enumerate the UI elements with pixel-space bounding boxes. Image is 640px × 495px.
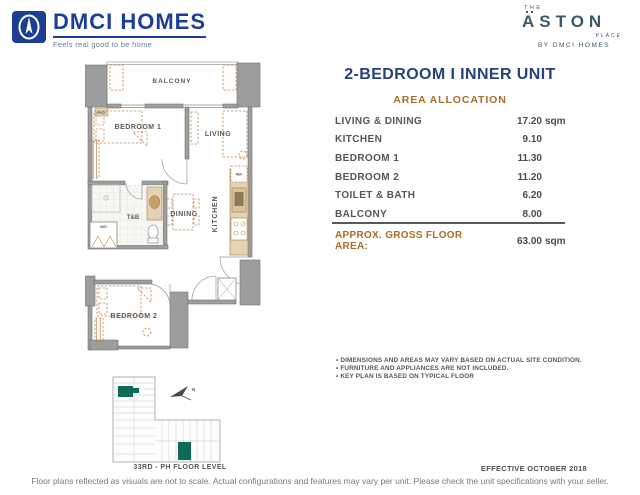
row-label: TOILET & BATH bbox=[335, 190, 415, 201]
tb-label: T&B bbox=[127, 215, 140, 221]
aston-by-line: BY DMCI HOMES bbox=[522, 42, 626, 49]
gross-floor-area-row: APPROX. GROSS FLOOR AREA: 63.00sqm bbox=[335, 233, 567, 249]
gross-floor-area-value: 63.00 bbox=[498, 236, 542, 247]
unit-floor-plan: BALCONY BEDROOM 1 LIVING T&B DINING KITC… bbox=[85, 52, 315, 364]
row-label: KITCHEN bbox=[335, 134, 382, 145]
highlighted-unit-balcony bbox=[133, 388, 139, 393]
aston-umlaut-decoration bbox=[526, 11, 528, 13]
area-allocation-heading: AREA ALLOCATION bbox=[325, 94, 575, 106]
row-unit bbox=[545, 134, 567, 145]
area-allocation-table: LIVING & DINING 17.20sqm KITCHEN 9.10 BE… bbox=[335, 112, 567, 224]
gross-floor-area-unit: sqm bbox=[545, 236, 567, 247]
table-row: TOILET & BATH 6.20 bbox=[335, 186, 567, 205]
row-label: BEDROOM 2 bbox=[335, 172, 399, 183]
table-divider bbox=[332, 222, 565, 224]
unit-title: 2-BEDROOM I INNER UNIT bbox=[325, 66, 575, 84]
bedroom2-label: BEDROOM 2 bbox=[111, 313, 158, 320]
row-value: 11.20 bbox=[498, 172, 542, 183]
dmci-name: DMCI HOMES bbox=[53, 11, 206, 38]
effective-date: EFFECTIVE OCTOBER 2018 bbox=[481, 464, 587, 473]
ref-label: REF bbox=[236, 173, 243, 177]
wacu-label: WACU bbox=[97, 111, 106, 115]
wd-label: W/D bbox=[100, 225, 107, 229]
brochure-page: DMCI HOMES Feels real good to be home TH… bbox=[0, 0, 640, 495]
table-row: BALCONY 8.00 bbox=[335, 205, 567, 224]
bedroom1-label: BEDROOM 1 bbox=[115, 124, 162, 131]
kitchen-counter bbox=[230, 166, 248, 255]
dmci-logo-text: DMCI HOMES Feels real good to be home bbox=[53, 11, 206, 49]
note-item: KEY PLAN IS BASED ON TYPICAL FLOOR bbox=[336, 373, 596, 381]
row-label: BEDROOM 1 bbox=[335, 153, 399, 164]
row-value: 6.20 bbox=[498, 190, 542, 201]
table-row: BEDROOM 2 11.20 bbox=[335, 168, 567, 187]
row-value: 9.10 bbox=[498, 134, 542, 145]
aston-name-text: ASTON bbox=[522, 12, 606, 31]
living-label: LIVING bbox=[205, 131, 231, 138]
highlighted-unit bbox=[118, 386, 133, 397]
north-arrow-icon: N bbox=[170, 386, 195, 400]
notes-list: DIMENSIONS AND AREAS MAY VARY BASED ON A… bbox=[336, 357, 596, 382]
row-unit bbox=[545, 190, 567, 201]
table-row: KITCHEN 9.10 bbox=[335, 131, 567, 150]
dmci-emblem-icon bbox=[12, 11, 46, 43]
row-value: 8.00 bbox=[498, 209, 542, 220]
note-item: FURNITURE AND APPLIANCES ARE NOT INCLUDE… bbox=[336, 365, 596, 373]
balcony-label: BALCONY bbox=[152, 78, 191, 85]
aston-the: THE bbox=[524, 5, 626, 11]
kitchen-label: KITCHEN bbox=[212, 196, 219, 233]
row-label: LIVING & DINING bbox=[335, 116, 422, 127]
key-plan: N bbox=[98, 376, 248, 464]
disclaimer-text: Floor plans reflected as visuals are not… bbox=[0, 476, 640, 486]
aston-name: ASTON bbox=[522, 12, 626, 32]
dining-label: DINING bbox=[170, 211, 198, 218]
row-value: 11.30 bbox=[498, 153, 542, 164]
row-unit bbox=[545, 172, 567, 183]
row-unit bbox=[545, 209, 567, 220]
table-row: BEDROOM 1 11.30 bbox=[335, 149, 567, 168]
row-unit bbox=[545, 153, 567, 164]
aston-place: PLACE bbox=[522, 33, 626, 39]
dmci-logo: DMCI HOMES Feels real good to be home bbox=[12, 11, 206, 49]
north-label: N bbox=[192, 387, 195, 392]
row-label: BALCONY bbox=[335, 209, 387, 220]
table-row: LIVING & DINING 17.20sqm bbox=[335, 112, 567, 131]
aston-place-logo: THE ASTON PLACE BY DMCI HOMES bbox=[522, 5, 626, 49]
highlighted-unit bbox=[178, 442, 191, 460]
dmci-tagline: Feels real good to be home bbox=[53, 40, 206, 49]
key-plan-caption: 33RD - PH FLOOR LEVEL bbox=[98, 464, 262, 471]
gross-floor-area-label: APPROX. GROSS FLOOR AREA: bbox=[335, 230, 498, 252]
utility-shaft bbox=[218, 278, 236, 300]
row-value: 17.20 bbox=[498, 116, 542, 127]
row-unit: sqm bbox=[545, 116, 567, 127]
note-item: DIMENSIONS AND AREAS MAY VARY BASED ON A… bbox=[336, 357, 596, 365]
